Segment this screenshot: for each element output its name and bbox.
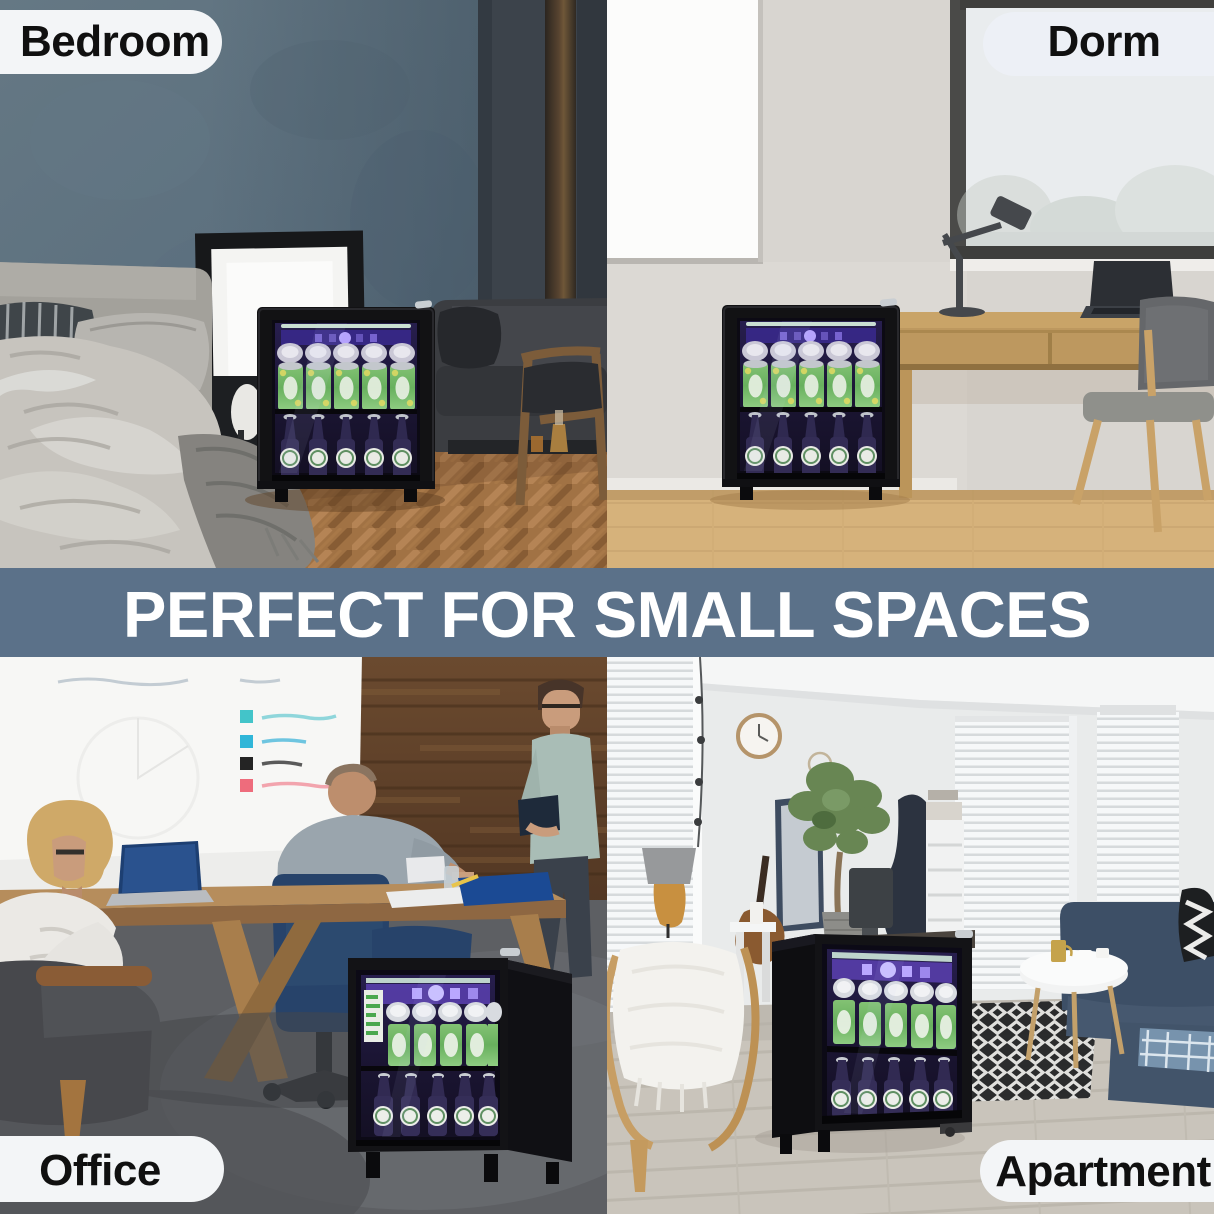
svg-text:PERFECT FOR SMALL SPACES: PERFECT FOR SMALL SPACES [123, 578, 1091, 651]
svg-text:Dorm: Dorm [1048, 17, 1161, 66]
svg-text:Bedroom: Bedroom [20, 17, 210, 66]
svg-text:Office: Office [39, 1146, 161, 1195]
svg-text:Apartment: Apartment [995, 1147, 1211, 1196]
